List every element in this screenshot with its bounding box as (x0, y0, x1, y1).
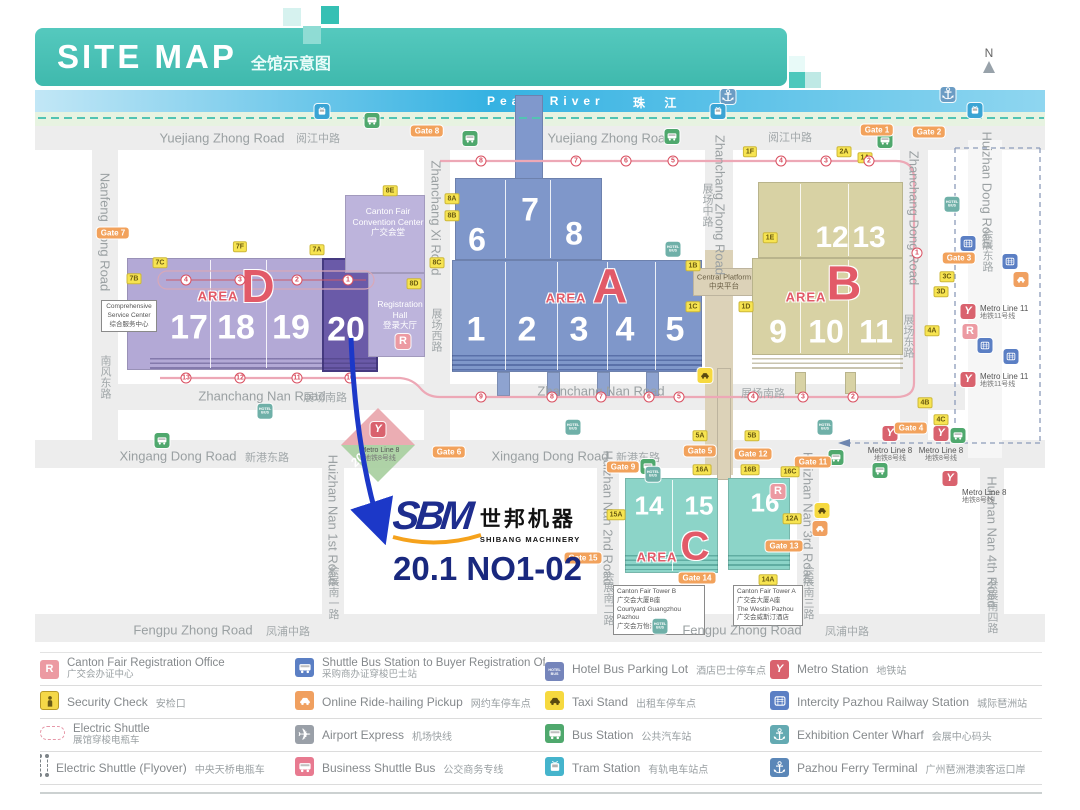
area-b-stub (845, 372, 856, 394)
shuttlebus-icon (295, 658, 314, 680)
shuttle-stop-marker: 8 (476, 156, 487, 167)
pedestrian-bridge (717, 368, 731, 480)
area-b-letter: B (827, 257, 862, 312)
checker-decoration (303, 26, 321, 44)
area-a-stub (646, 372, 659, 396)
river-name-en: Pearl River (487, 94, 605, 108)
area-b-word: AREA (786, 290, 827, 305)
anchorT-icon: ⚓ (770, 725, 789, 745)
service-center-box: Comprehensive Service Center 综合服务中心 (101, 300, 157, 332)
hall-entrance-badge: 3C (940, 271, 955, 282)
road-zhanchang-xi (424, 150, 450, 440)
area-c-16-stripes (728, 552, 790, 567)
checker-decoration (283, 8, 301, 26)
shuttle-stop-marker: 2 (864, 156, 875, 167)
page-subtitle: 全馆示意图 (251, 50, 331, 74)
area-a-stub (497, 372, 510, 396)
area-d-word: AREA (198, 289, 239, 304)
r-icon: R (40, 659, 59, 679)
rail-icon (770, 691, 789, 713)
map-marker-hotelM-icon: HOTELBUS (818, 412, 833, 435)
sbm-logo: SBM (391, 497, 472, 535)
road-zhanchang-nan (95, 384, 965, 410)
title-banner: SITE MAP 全馆示意图 (35, 28, 787, 86)
shuttle-stop-marker: 10 (345, 373, 356, 384)
map-marker-rail-icon (1003, 254, 1018, 272)
hotel-icon: HOTELBUS (545, 657, 564, 682)
hall-entrance-badge: 7F (233, 241, 247, 252)
exhibitor-callout: SBM 世邦机器 SHIBANG MACHINERY 20.1 NO1-02 (393, 497, 582, 588)
area-b-upper-block (758, 182, 903, 258)
legend-item: RCanton Fair Registration Office广交会办证中心 (40, 653, 295, 686)
map-marker-metro-icon: Y (371, 419, 386, 437)
taxi-icon (545, 691, 564, 713)
sbm-swoosh-icon (391, 533, 483, 547)
area-a-letter: A (593, 260, 628, 315)
anchorB-icon: ⚓ (770, 758, 789, 778)
area-a-stripes (452, 352, 702, 372)
road-zhanchang-zhong (705, 150, 733, 250)
sbm-logo-subtitle: SHIBANG MACHINERY (480, 535, 581, 544)
loop-icon (40, 726, 65, 745)
tower-a-box: Canton Fair Tower A 广交会大厦A座 The Westin P… (733, 585, 803, 626)
road-xingang (35, 440, 1045, 468)
map-marker-metro-icon: Y (934, 423, 949, 441)
site-map-page: SITE MAP 全馆示意图 N Pearl River 珠 江 (0, 0, 1080, 810)
area-d-stripes (150, 355, 378, 372)
north-compass: N (976, 46, 1002, 73)
area-d-letter: D (241, 259, 274, 313)
river-name-zh: 珠 江 (633, 94, 684, 111)
legend-item: Taxi Stand出租车停车点 (545, 686, 770, 719)
shuttle-stop-marker: 13 (181, 373, 192, 384)
central-platform-label: Central Platform 中央平台 (697, 273, 751, 292)
legend-item: Electric Shuttle展馆穿梭电瓶车 (40, 719, 295, 752)
legend-item: Electric Shuttle (Flyover)中央天桥电瓶车 (40, 752, 295, 785)
hall-entrance-badge: 1A (858, 152, 873, 163)
north-arrow-icon (983, 61, 995, 73)
checker-decoration (789, 56, 805, 72)
map-marker-hotelM-icon: HOTELBUS (666, 234, 681, 257)
convention-center-label: Canton Fair Convention Center 广交会堂 (353, 206, 424, 238)
bus-icon (545, 724, 564, 746)
legend-item: HOTELBUSHotel Bus Parking Lot酒店巴士停车点 (545, 653, 770, 686)
hall-entrance-badge: 4C (934, 414, 949, 425)
legend-item: Shuttle Bus Station to Buyer Registratio… (295, 653, 545, 686)
area-b-stub (795, 372, 806, 394)
air-icon: ✈ (295, 725, 314, 745)
legend-item: ⚓Pazhou Ferry Terminal广州琶洲港澳客运口岸 (770, 752, 1042, 785)
busline-icon (295, 757, 314, 779)
page-title: SITE MAP (57, 38, 237, 76)
legend-item: Online Ride-hailing Pickup网约车停车点 (295, 686, 545, 719)
metro-diamond-label: Metro Line 8 地铁8号线 (361, 447, 400, 463)
shuttle-stop-marker: 3 (821, 156, 832, 167)
map-marker-ride-icon (1014, 272, 1029, 290)
shuttle-stop-marker: 5 (668, 156, 679, 167)
hall-entrance-badge: 3D (934, 286, 949, 297)
tram-icon (545, 757, 564, 779)
checker-decoration (789, 72, 805, 88)
map-marker-rail-icon (1004, 349, 1019, 367)
road-zhanchang-dong (900, 150, 928, 450)
road-huizhan-nan-4th (980, 468, 1004, 615)
area-a-pier (515, 95, 543, 180)
legend-item: YMetro Station地铁站 (770, 653, 1042, 686)
road-huizhan-nan-1st (322, 468, 344, 615)
area-b-stripes (752, 355, 903, 372)
tower-b-box: Canton Fair Tower B 广交会大厦B座 Courtyard Gu… (613, 585, 705, 635)
sbm-logo-chinese: 世邦机器 (480, 503, 581, 533)
map-marker-hotelM-icon: HOTELBUS (566, 412, 581, 435)
map-marker-metro-icon: Y (883, 423, 898, 441)
checker-decoration (805, 72, 821, 88)
gate-label: Gate 14 (679, 573, 716, 584)
metro-icon: Y (770, 659, 789, 679)
fly-icon (40, 755, 48, 781)
shuttle-stop-marker: 4 (776, 156, 787, 167)
shuttle-stop-marker: 11 (292, 373, 303, 384)
road-fengpu (35, 614, 1045, 642)
area-c-word: AREA (637, 550, 678, 565)
shuttle-stop-marker: 12 (235, 373, 246, 384)
road-huizhan-dong (968, 140, 1002, 458)
legend: RCanton Fair Registration Office广交会办证中心S… (40, 652, 1042, 785)
shuttle-stop-marker: 6 (621, 156, 632, 167)
booth-number: 20.1 NO1-02 (393, 550, 582, 588)
legend-item: ✈Airport Express机场快线 (295, 719, 545, 752)
legend-item: Intercity Pazhou Railway Station城际琶洲站 (770, 686, 1042, 719)
legend-item: Bus Station公共汽车站 (545, 719, 770, 752)
legend-item: Tram Station有轨电车站点 (545, 752, 770, 785)
area-a-stub (597, 372, 610, 396)
road-nanfeng (92, 150, 118, 440)
area-a-word: AREA (546, 291, 587, 306)
hall-entrance-badge: 14A (759, 574, 778, 585)
ride-icon (295, 691, 314, 713)
north-label: N (976, 46, 1002, 60)
map-marker-hotelM-icon: HOTELBUS (945, 189, 960, 212)
registration-hall-label: Registration Hall 登录大厅 (377, 299, 422, 331)
map-marker-metro-icon: Y (943, 468, 958, 486)
area-a-upper-block (455, 178, 602, 260)
sec-icon (40, 691, 59, 713)
area-a-stub (547, 372, 560, 396)
hall-entrance-badge: 7A (310, 244, 325, 255)
legend-item: ⚓Exhibition Center Wharf会展中心码头 (770, 719, 1042, 752)
checker-decoration (321, 6, 339, 24)
shuttle-stop-marker: 7 (571, 156, 582, 167)
legend-item: Security Check安检口 (40, 686, 295, 719)
page-bottom-divider (40, 792, 1042, 794)
legend-item: Business Shuttle Bus公交商务专线 (295, 752, 545, 785)
area-c-letter: C (681, 525, 710, 570)
